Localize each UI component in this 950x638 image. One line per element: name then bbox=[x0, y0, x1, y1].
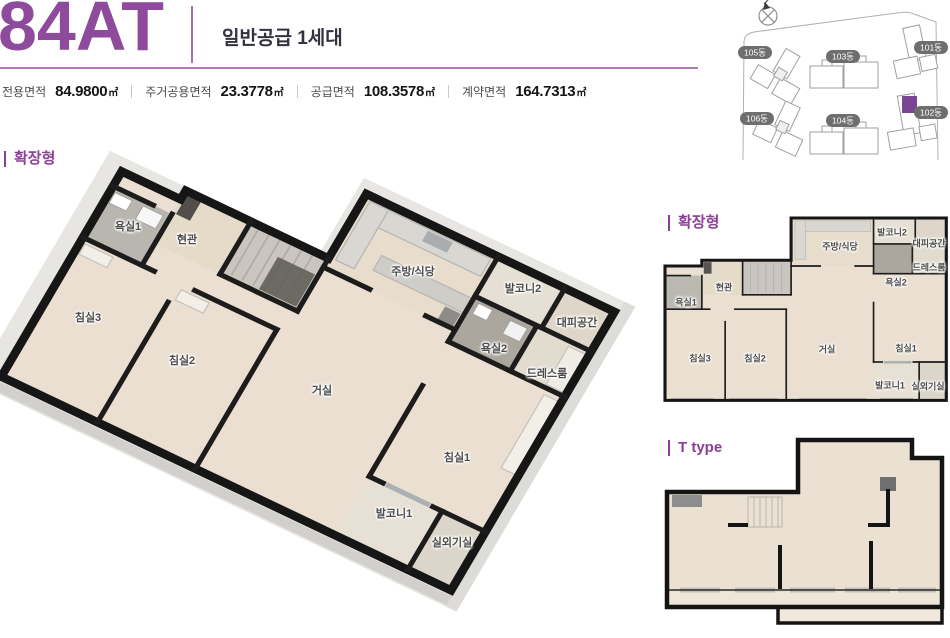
room-label-balcony2: 발코니2 bbox=[877, 226, 907, 239]
room-label-bathroom1: 욕실1 bbox=[675, 296, 697, 309]
brochure-page: { "header": { "unit_code": "84AT", "supp… bbox=[0, 0, 950, 638]
room-label-bedroom3: 침실3 bbox=[689, 352, 711, 365]
room-label-entrance: 현관 bbox=[177, 231, 197, 247]
room-label-living: 거실 bbox=[312, 382, 332, 398]
room-label-balcony1: 발코니1 bbox=[875, 379, 905, 392]
room-label-outdoorunit: 실외기실 bbox=[432, 534, 472, 550]
area-unit: ㎡ bbox=[576, 84, 586, 99]
room-label-balcony2: 발코니2 bbox=[505, 280, 541, 296]
title-divider bbox=[191, 6, 193, 63]
room-label-bedroom2: 침실2 bbox=[169, 352, 195, 368]
room-label-bedroom1: 침실1 bbox=[444, 449, 470, 465]
building-label: 106동 bbox=[746, 114, 768, 124]
supply-info-label: 일반공급 1세대 bbox=[222, 23, 343, 50]
room-label-bedroom1: 침실1 bbox=[895, 342, 917, 355]
room-label-bathroom2: 욕실2 bbox=[481, 340, 507, 356]
area-unit: ㎡ bbox=[425, 84, 435, 99]
area-label: 전용면적 bbox=[2, 83, 46, 100]
unit-type-title: 84AT bbox=[0, 0, 164, 66]
building-106 bbox=[752, 94, 815, 156]
floorplan-t-type bbox=[660, 435, 950, 635]
area-value: 84.9800 bbox=[55, 83, 107, 100]
building-label: 105동 bbox=[744, 48, 766, 58]
room-label-kitchen: 주방/식당 bbox=[822, 240, 858, 253]
area-label: 주거공용면적 bbox=[145, 83, 211, 100]
building-label: 103동 bbox=[832, 52, 854, 62]
area-value: 23.3778 bbox=[221, 83, 273, 100]
area-item: 주거공용면적 23.3778 ㎡ bbox=[145, 83, 283, 100]
area-value: 164.7313 bbox=[515, 83, 575, 100]
area-value: 108.3578 bbox=[364, 83, 424, 100]
room-label-outdoorunit: 실외기실 bbox=[911, 380, 944, 393]
compass-icon bbox=[759, 0, 777, 25]
area-unit: ㎡ bbox=[108, 84, 118, 99]
area-unit: ㎡ bbox=[274, 84, 284, 99]
building-label: 102동 bbox=[920, 108, 942, 118]
building-label: 104동 bbox=[832, 116, 854, 126]
room-label-bathroom1: 욕실1 bbox=[115, 218, 141, 234]
area-label: 공급면적 bbox=[311, 83, 355, 100]
room-label-bedroom3: 침실3 bbox=[75, 309, 101, 325]
site-map: 105동 103동 101동 106동 104동 102동 bbox=[722, 0, 950, 164]
area-item: 전용면적 84.9800 ㎡ bbox=[2, 83, 118, 100]
floorplan-2d-expanded: 주방/식당 발코니2 대피공간 드레스룸 욕실2 현관 욕실1 침실3 침실2 … bbox=[660, 212, 950, 408]
room-label-balcony1: 발코니1 bbox=[376, 505, 412, 521]
room-label-kitchen: 주방/식당 bbox=[391, 263, 435, 279]
room-label-dressroom: 드레스룸 bbox=[527, 365, 567, 381]
room-label-bathroom2: 욕실2 bbox=[885, 276, 907, 289]
floorplan-3d: 욕실1 현관 주방/식당 발코니2 대피공간 욕실2 드레스룸 침실3 침실2 … bbox=[0, 150, 650, 632]
area-item: 계약면적 164.7313 ㎡ bbox=[462, 83, 586, 100]
room-label-shelter: 대피공간 bbox=[912, 237, 945, 250]
header-rule bbox=[0, 67, 698, 69]
room-label-bedroom2: 침실2 bbox=[744, 352, 766, 365]
area-separator bbox=[297, 85, 298, 98]
area-label: 계약면적 bbox=[462, 83, 506, 100]
area-summary-row: 전용면적 84.9800 ㎡ 주거공용면적 23.3778 ㎡ 공급면적 108… bbox=[2, 83, 586, 100]
room-label-entrance: 현관 bbox=[716, 281, 733, 294]
room-label-shelter: 대피공간 bbox=[557, 314, 597, 330]
area-item: 공급면적 108.3578 ㎡ bbox=[311, 83, 435, 100]
room-label-dressroom: 드레스룸 bbox=[912, 261, 945, 274]
area-separator bbox=[448, 85, 449, 98]
building-label: 101동 bbox=[920, 43, 942, 53]
room-label-living: 거실 bbox=[819, 343, 836, 356]
area-separator bbox=[131, 85, 132, 98]
